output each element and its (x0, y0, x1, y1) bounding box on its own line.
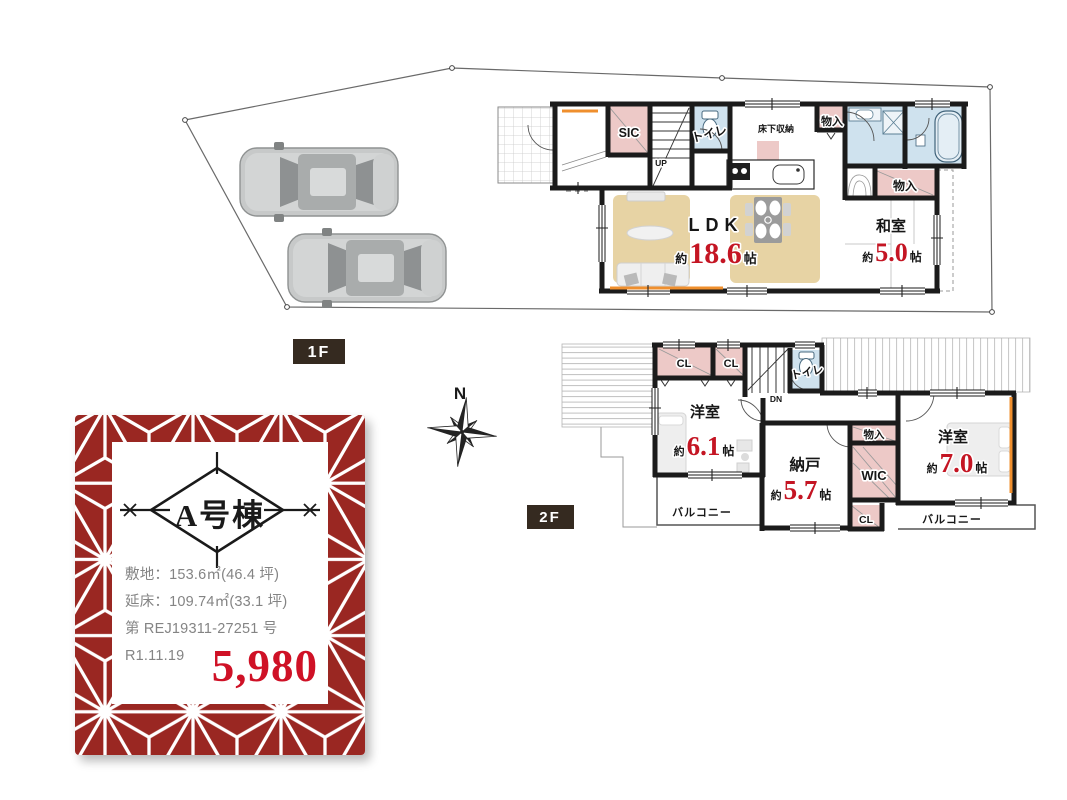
label-underfloor: 床下収納 (758, 123, 794, 134)
label-wic: WIC (861, 468, 887, 483)
svg-text:1F: 1F (308, 344, 331, 361)
sofa (617, 263, 689, 286)
tag-2f: 2F (527, 505, 574, 529)
label-storage-room: 納戸 (789, 455, 820, 474)
kitchen-sink (773, 165, 804, 184)
floor-area-line: 延床：109.74㎡(33.1 坪) (125, 591, 323, 618)
entrance-porch (498, 107, 553, 183)
roof-hatch-left (562, 344, 656, 427)
car-bottom (288, 228, 446, 308)
stairs-1f (651, 108, 691, 186)
svg-text:2F: 2F (539, 509, 561, 526)
label-closet-top-1f: 物入 (821, 114, 843, 128)
kitchen-counter (727, 160, 814, 189)
stairs-2f (748, 347, 788, 393)
bed-bedroom1 (656, 413, 686, 476)
label-stairs-up: UP (655, 158, 667, 168)
site-area-line: 敷地：153.6㎡(46.4 坪) (125, 564, 323, 591)
parked-cars (240, 142, 446, 308)
label-bedroom2: 洋室 (938, 428, 968, 446)
price-value: 5,980 (212, 640, 318, 692)
closet-chevrons-2f (661, 380, 735, 386)
lower-roof-outline (601, 427, 657, 527)
label-cl2: CL (724, 358, 739, 370)
label-cl3: CL (859, 514, 874, 526)
label-ldk: LDK (689, 215, 744, 235)
underfloor-storage-hatch (757, 141, 779, 160)
floor1-plan: SIC トイレ 床下収納 物入 物入 UP LDK 約18.6帖 和室 約5.0… (498, 98, 968, 297)
card-inner-panel: A号棟 敷地：153.6㎡(46.4 坪) 延床：109.74㎡(33.1 坪)… (112, 442, 328, 704)
wash-basin (856, 110, 873, 119)
label-closet-2f: 物入 (864, 428, 885, 441)
label-washitsu-size: 約5.0帖 (862, 238, 922, 267)
wood-floor-grain (848, 175, 871, 196)
label-balcony-left: バルコニー (672, 506, 732, 519)
floorplan-sheet: SIC トイレ 床下収納 物入 物入 UP LDK 約18.6帖 和室 約5.0… (0, 0, 1067, 800)
closet-chevron-1f (827, 133, 835, 139)
entry-step-lines (562, 151, 606, 171)
tv-board (627, 192, 665, 201)
compass-rose: N (423, 384, 501, 471)
label-storage-size: 約5.7帖 (771, 475, 832, 505)
label-sic: SIC (619, 126, 640, 140)
floor2-plan: CL CL トイレ DN 物入 WIC CL 洋室 約6.1帖 納戸 約5.7帖… (562, 338, 1035, 534)
tag-1f: 1F (293, 339, 345, 364)
label-bedroom1: 洋室 (690, 403, 720, 421)
low-table (627, 226, 673, 240)
car-top (240, 142, 398, 222)
unit-title: A号棟 (112, 490, 328, 535)
roof-hatch-right (822, 338, 1030, 392)
desk-bedroom1 (737, 440, 752, 472)
label-balcony-right: バルコニー (922, 513, 982, 526)
label-washitsu: 和室 (876, 217, 906, 235)
compass-north-label: N (454, 384, 466, 403)
property-card: A号棟 敷地：153.6㎡(46.4 坪) 延床：109.74㎡(33.1 坪)… (75, 415, 365, 755)
label-closet-washitsu: 物入 (893, 178, 917, 193)
label-cl1: CL (677, 358, 692, 370)
label-stairs-dn: DN (770, 394, 782, 404)
